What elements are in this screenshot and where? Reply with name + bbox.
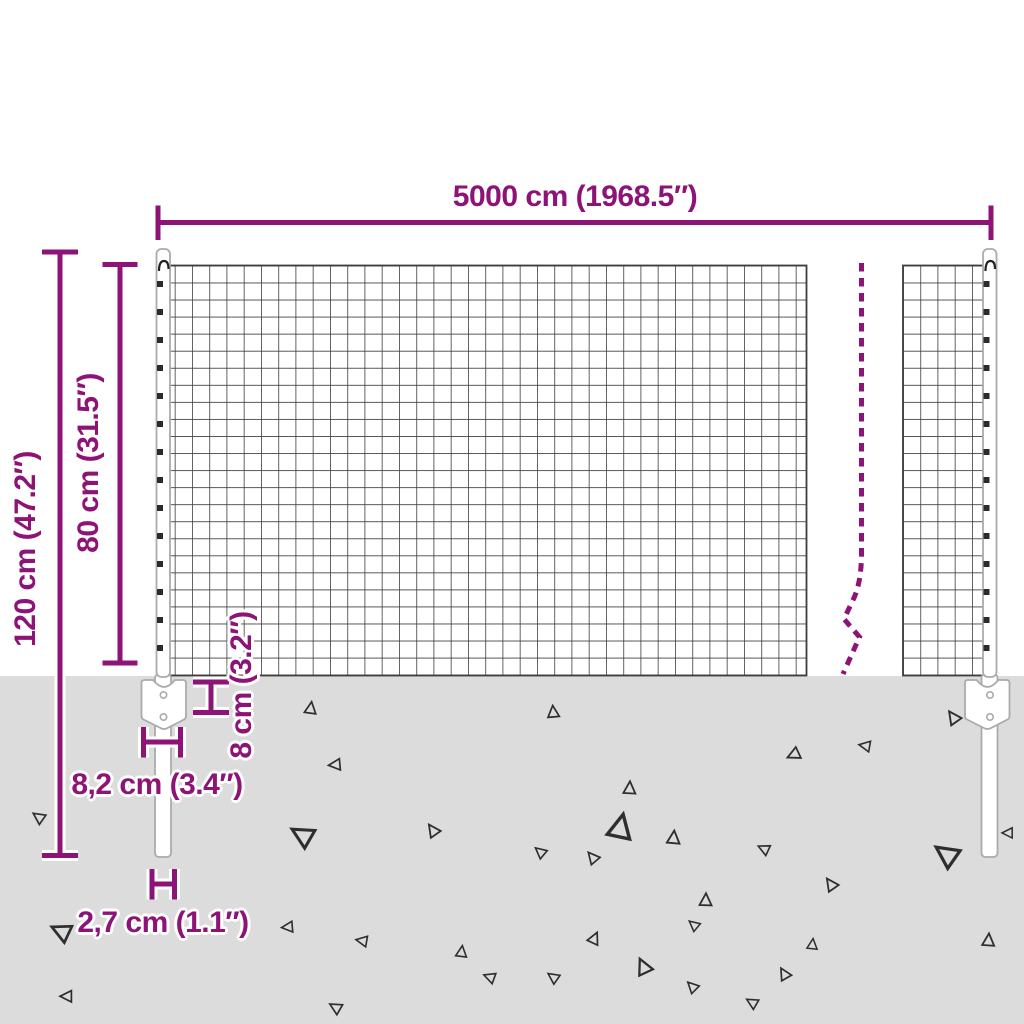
dimension-label-anchor-height: 8 cm (3.2″): [225, 611, 259, 758]
dimension-label-mesh-height: 80 cm (31.5″): [72, 373, 106, 553]
fence-dimension-diagram: 5000 cm (1968.5″) 120 cm (47.2″) 80 cm (…: [0, 0, 1024, 1024]
anchor-plate-left: [142, 680, 187, 729]
dimension-label-total-height: 120 cm (47.2″): [9, 451, 43, 647]
anchor-plate-right: [965, 680, 1010, 729]
diagram-graphics: [0, 0, 1024, 1024]
length-break-line: [843, 263, 862, 674]
dimension-label-total-width: 5000 cm (1968.5″): [453, 180, 697, 214]
dimension-label-post-width: 2,7 cm (1.1″): [77, 906, 248, 940]
mesh-panel-right: [903, 266, 985, 676]
dimension-mesh-height: [103, 265, 138, 664]
dimension-label-anchor-width: 8,2 cm (3.4″): [71, 768, 242, 802]
ground: [0, 676, 1024, 1024]
